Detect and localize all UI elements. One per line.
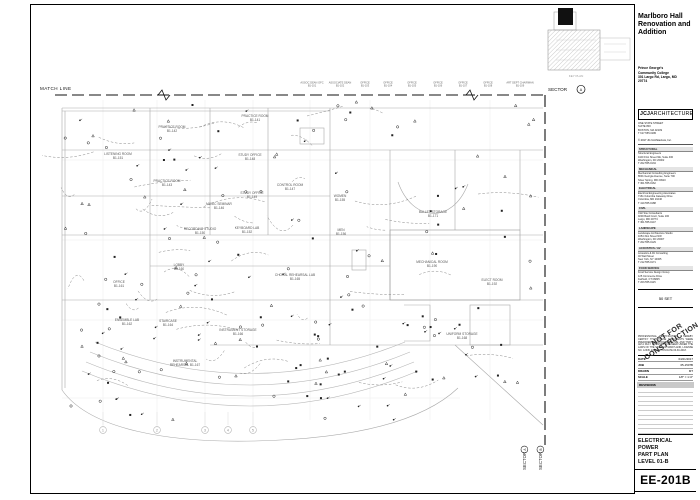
junction-box-symbol bbox=[430, 326, 432, 328]
circuit-arc bbox=[136, 199, 152, 211]
equipment-symbol bbox=[532, 118, 535, 120]
circuit-arc bbox=[126, 304, 140, 310]
sector-a-letter: A bbox=[523, 448, 527, 451]
circuit-arc bbox=[267, 216, 293, 231]
room-label: STAIRCASEB1-164 bbox=[159, 319, 177, 327]
receptacle-symbol bbox=[317, 338, 319, 340]
junction-box-symbol bbox=[415, 371, 417, 373]
equipment-symbol bbox=[529, 287, 532, 289]
sheet-title-line: LEVEL 01-B bbox=[638, 459, 693, 466]
circuit-arc bbox=[367, 227, 385, 230]
grid-bubble-number: 3 bbox=[204, 428, 206, 432]
room-label: OFFICEB1-105 bbox=[407, 81, 417, 88]
drawing-sheet: KEY PLAN MATCH LINE SECTOR A bbox=[0, 0, 700, 500]
project-title-line: Addition bbox=[638, 29, 693, 37]
room-label: ART DEPT CHAIRMANB1-109 bbox=[506, 81, 533, 88]
room-label: BALLET STORAGEB1-171 bbox=[419, 210, 447, 218]
junction-box-symbol bbox=[287, 380, 289, 382]
equipment-symbol bbox=[385, 362, 388, 364]
junction-box-symbol bbox=[320, 397, 322, 399]
receptacle-symbol bbox=[471, 346, 473, 348]
junction-box-symbol bbox=[114, 256, 116, 258]
field-value: 05-1507B bbox=[680, 363, 693, 367]
receptacle-symbol bbox=[346, 191, 348, 193]
receptacle-symbol bbox=[324, 417, 326, 419]
room-label: INSTRUMENT STORAGEB1-166 bbox=[219, 328, 256, 336]
room-label: MENB1-156 bbox=[336, 228, 347, 236]
junction-box-symbol bbox=[376, 346, 378, 348]
junction-box-symbol bbox=[314, 334, 316, 336]
room-label: LISTENING ROOMB1-151 bbox=[104, 152, 132, 160]
equipment-symbol bbox=[516, 381, 519, 383]
consultant-entry: ACOUSTICS / AVAcoustics & AV Consulting4… bbox=[638, 247, 693, 265]
junction-box-symbol bbox=[435, 253, 437, 255]
receptacle-symbol bbox=[98, 303, 100, 305]
circuit-arc bbox=[143, 209, 173, 216]
sheet-title-line: ELECTRICAL bbox=[638, 438, 693, 445]
sector-b-letter: B bbox=[539, 448, 543, 450]
circuit-arc bbox=[418, 271, 451, 275]
junction-box-symbol bbox=[97, 342, 99, 344]
equipment-symbol bbox=[179, 305, 182, 307]
circuit-arc bbox=[349, 291, 404, 294]
room-label: WOMENB1-155 bbox=[334, 194, 347, 202]
circuit-arc bbox=[466, 354, 513, 358]
receptacle-symbol bbox=[423, 326, 425, 328]
junction-box-symbol bbox=[317, 335, 319, 337]
junction-box-symbol bbox=[106, 308, 108, 310]
junction-box-symbol bbox=[211, 298, 213, 300]
receptacle-symbol bbox=[80, 329, 82, 331]
logo-bold: JCJ bbox=[640, 111, 650, 117]
equipment-symbol bbox=[239, 338, 242, 340]
field-label: JOB bbox=[638, 363, 644, 367]
junction-box-symbol bbox=[504, 236, 506, 238]
field-value: 04/21/2017 bbox=[679, 357, 693, 361]
equipment-symbol bbox=[527, 123, 530, 125]
junction-box-symbol bbox=[459, 324, 461, 326]
receptacle-symbol bbox=[85, 232, 87, 234]
sheet-title-line: POWER bbox=[638, 445, 693, 452]
grid-bubble-number: 1 bbox=[102, 428, 104, 432]
equipment-symbol bbox=[443, 377, 446, 379]
circuit-arc bbox=[42, 152, 93, 158]
consultant-entry: ELECTRICALElectrical Engineering Associa… bbox=[638, 187, 693, 205]
room-label: OFFICEB1-108 bbox=[483, 81, 493, 88]
match-line-label: MATCH LINE bbox=[40, 86, 71, 91]
room-label: LOBBYB1-160 bbox=[174, 263, 186, 271]
equipment-symbol bbox=[275, 153, 278, 155]
consultant-line: T 301.555.0147 bbox=[638, 221, 693, 224]
receptacle-symbol bbox=[105, 146, 107, 148]
receptacle-symbol bbox=[187, 292, 189, 294]
circuit-arc bbox=[206, 351, 224, 361]
circuit-arc bbox=[231, 252, 268, 261]
client-line: 20774 bbox=[638, 79, 693, 83]
field-label: SCALE bbox=[638, 375, 648, 379]
sector-b-label: SECTOR bbox=[538, 452, 543, 470]
revisions-lines bbox=[638, 388, 693, 434]
circuit-arc bbox=[297, 314, 307, 320]
consultant-line: T 202.555.0134 bbox=[638, 162, 693, 165]
equipment-symbol bbox=[319, 359, 322, 361]
consultant-line: T 410.555.0188 bbox=[638, 202, 693, 205]
circuit-arc bbox=[240, 364, 260, 374]
receptacle-symbol bbox=[312, 129, 314, 131]
equipment-symbol bbox=[414, 120, 417, 122]
equipment-symbol bbox=[81, 345, 84, 347]
grid-bubbles: 12345 bbox=[100, 412, 257, 433]
receptacle-symbol bbox=[433, 334, 435, 336]
circuit-arc bbox=[244, 359, 289, 368]
room-label: STUDY OFFICEB1-148 bbox=[238, 153, 261, 161]
room-label: OFFICEB1-104 bbox=[383, 81, 393, 88]
junction-box-symbol bbox=[338, 374, 340, 376]
receptacle-symbol bbox=[348, 294, 350, 296]
junction-box-symbol bbox=[191, 104, 193, 106]
equipment-symbol bbox=[81, 202, 84, 204]
receptacle-symbol bbox=[218, 376, 220, 378]
equipment-symbol bbox=[381, 259, 384, 261]
field-value: 1/8" = 1'-0" bbox=[679, 375, 693, 379]
receptacle-symbol bbox=[261, 324, 263, 326]
receptacle-symbol bbox=[195, 274, 197, 276]
room-label: OFFICEB1-103 bbox=[360, 81, 370, 88]
receptacle-symbol bbox=[337, 105, 339, 107]
circuit-arc bbox=[159, 250, 190, 253]
grid-bubble-number: 5 bbox=[252, 428, 254, 432]
seating-tiers bbox=[82, 342, 418, 406]
sheet-number: EE-201B bbox=[635, 469, 696, 492]
architect-address: ONE STATE STREET SUITE 800 BOSTON, MA 02… bbox=[638, 122, 693, 135]
room-label: INSTRUMENTALREHEARSAL B1-167 bbox=[170, 359, 201, 367]
copyright-line: © 2017 JCJ Architecture, Inc. bbox=[638, 139, 693, 145]
receptacle-symbol bbox=[314, 321, 316, 323]
junction-box-symbol bbox=[437, 195, 439, 197]
circuit-arc bbox=[200, 122, 244, 128]
equipment-symbol bbox=[273, 156, 276, 158]
receptacle-symbol bbox=[216, 241, 218, 243]
keyplan-label: KEY PLAN bbox=[569, 74, 584, 78]
junction-box-symbol bbox=[306, 395, 308, 397]
sector-tag-top: SECTOR A bbox=[548, 85, 585, 93]
room-label: PRACTICE ROOMB1-142 bbox=[159, 125, 186, 133]
room-label: ELECT ROOMB1-192 bbox=[481, 278, 502, 286]
sector-top-label: SECTOR bbox=[548, 87, 568, 92]
equipment-symbol bbox=[184, 188, 187, 190]
junction-box-symbol bbox=[129, 414, 131, 416]
keyplan: KEY PLAN bbox=[548, 8, 630, 78]
grid-bubble-number: 2 bbox=[156, 428, 158, 432]
room-label: RECORDING STUDIOB1-150 bbox=[184, 227, 217, 235]
receptacle-symbol bbox=[362, 305, 364, 307]
project-title-line: Marlboro Hall bbox=[638, 13, 693, 21]
sector-tag-bottom-b: SECTOR B bbox=[537, 446, 544, 470]
room-labels: PRACTICE ROOMB1-141PRACTICE ROOMB1-142LI… bbox=[104, 114, 503, 367]
receptacle-symbol bbox=[434, 318, 436, 320]
junction-box-symbol bbox=[297, 119, 299, 121]
room-label: OFFICEB1-106 bbox=[433, 81, 443, 88]
receptacle-symbol bbox=[345, 118, 347, 120]
equipment-symbol bbox=[315, 382, 318, 384]
receptacle-symbol bbox=[396, 126, 398, 128]
equipment-symbol bbox=[270, 304, 273, 306]
equipment-symbol bbox=[167, 120, 170, 122]
junction-box-symbol bbox=[107, 382, 109, 384]
junction-box-symbol bbox=[349, 111, 351, 113]
junction-box-symbol bbox=[256, 346, 258, 348]
equipment-symbol bbox=[504, 380, 507, 382]
consultant-entry: LANDSCAPELandscape Architecture Studio10… bbox=[638, 227, 693, 245]
junction-box-symbol bbox=[501, 210, 503, 212]
circuit-arc bbox=[277, 340, 320, 344]
receptacle-symbol bbox=[108, 328, 110, 330]
set-label: 50 SET bbox=[638, 289, 693, 308]
consultant-entry: MECHANICALMechanical Consulting Engineer… bbox=[638, 167, 693, 185]
circuit-arc bbox=[68, 275, 84, 289]
receptacle-symbol bbox=[346, 275, 348, 277]
architect-address-line: T 617.555.0180 bbox=[638, 132, 693, 135]
room-label: CHORAL REHEARSAL LABB1-165 bbox=[275, 273, 315, 281]
sheet-title-line: PART PLAN bbox=[638, 452, 693, 459]
receptacle-symbol bbox=[70, 405, 72, 407]
titleblock: Marlboro Hall Renovation and Addition Pr… bbox=[634, 4, 696, 494]
room-label: CONTROL ROOMB1-147 bbox=[277, 183, 304, 191]
junction-box-symbol bbox=[295, 367, 297, 369]
circuit-arc bbox=[355, 196, 416, 205]
junction-box-symbol bbox=[320, 383, 322, 385]
receptacle-symbol bbox=[87, 142, 89, 144]
equipment-symbol bbox=[122, 357, 125, 359]
junction-box-symbol bbox=[432, 379, 434, 381]
junction-box-symbol bbox=[477, 307, 479, 309]
client-block: Prince George's Community College 301 La… bbox=[638, 66, 693, 82]
circuit-arc bbox=[61, 188, 74, 197]
receptacle-symbol bbox=[130, 178, 132, 180]
receptacle-symbol bbox=[160, 368, 162, 370]
equipment-symbol bbox=[404, 393, 407, 395]
sector-a-label: SECTOR bbox=[522, 452, 527, 470]
circuit-arc bbox=[165, 307, 227, 315]
logo-rest: ARCHITECTURE bbox=[650, 111, 693, 117]
electrical-devices bbox=[64, 101, 535, 421]
consultant-entry: STRUCTURALStructural Engineers1100 First… bbox=[638, 147, 693, 165]
circuit-arc bbox=[359, 382, 402, 385]
room-label: KEYBOARD LABB1-152 bbox=[235, 226, 260, 234]
junction-box-symbol bbox=[497, 375, 499, 377]
circuit-arc bbox=[194, 154, 222, 159]
junction-box-symbol bbox=[237, 254, 239, 256]
junction-box-symbol bbox=[327, 358, 329, 360]
junction-box-symbol bbox=[437, 224, 439, 226]
receptacle-symbol bbox=[141, 283, 143, 285]
field-value: MT bbox=[689, 369, 693, 373]
circuit-arc bbox=[396, 380, 439, 388]
room-label: MECHANICAL ROOMB1-190 bbox=[416, 260, 448, 268]
equipment-symbol bbox=[125, 360, 128, 362]
junction-box-symbol bbox=[344, 371, 346, 373]
consultant-line: T 202.555.0129 bbox=[638, 241, 693, 244]
equipment-symbol bbox=[462, 207, 465, 209]
equipment-symbol bbox=[504, 175, 507, 177]
project-title: Marlboro Hall Renovation and Addition bbox=[638, 13, 693, 36]
equipment-symbol bbox=[514, 104, 517, 106]
room-label: ASSOC DEAN OFCB1-101 bbox=[300, 81, 323, 88]
equipment-symbol bbox=[172, 418, 175, 420]
sheet-title: ELECTRICAL POWER PART PLAN LEVEL 01-B bbox=[638, 434, 693, 466]
equipment-symbol bbox=[431, 252, 434, 254]
field-label: DRAWN bbox=[638, 369, 649, 373]
junction-box-symbol bbox=[312, 237, 314, 239]
receptacle-symbol bbox=[298, 219, 300, 221]
consultant-line: T 212.555.0171 bbox=[638, 261, 693, 264]
receptacle-symbol bbox=[426, 230, 428, 232]
circuit-arc bbox=[152, 205, 212, 207]
consultants-list: STRUCTURALStructural Engineers1100 First… bbox=[638, 147, 693, 286]
junction-box-symbol bbox=[163, 159, 165, 161]
room-label: OFFICEB1-107 bbox=[458, 81, 468, 88]
floor-plan: KEY PLAN MATCH LINE SECTOR A bbox=[0, 0, 634, 500]
field-scale: SCALE1/8" = 1'-0" bbox=[638, 375, 693, 381]
junction-box-symbol bbox=[500, 344, 502, 346]
room-label: ENSEMBLE LABB1-162 bbox=[115, 318, 139, 326]
receptacle-symbol bbox=[159, 137, 161, 139]
junction-box-symbol bbox=[217, 130, 219, 132]
equipment-symbol bbox=[214, 342, 217, 344]
consultant-entry: CIVILCivil Site Consultants9200 Basil Co… bbox=[638, 207, 693, 225]
junction-box-symbol bbox=[260, 316, 262, 318]
receptacle-symbol bbox=[222, 194, 224, 196]
circuit-arc bbox=[238, 122, 257, 127]
circuit-arc bbox=[99, 137, 134, 143]
room-label: PRACTICE ROOMB1-141 bbox=[242, 114, 269, 122]
keyplan-sector-fill bbox=[558, 8, 573, 25]
circuit-arc bbox=[190, 290, 235, 295]
project-title-line: Renovation and bbox=[638, 21, 693, 29]
consultant-line: T 301.555.0162 bbox=[638, 182, 693, 185]
receptacle-symbol bbox=[99, 400, 101, 402]
receptacle-symbol bbox=[168, 237, 170, 239]
circuit-arc bbox=[385, 219, 429, 223]
equipment-symbol bbox=[235, 375, 238, 377]
stamp-area: NOT FOR CONSTRUCTION bbox=[638, 308, 693, 335]
junction-box-symbol bbox=[391, 134, 393, 136]
junction-box-symbol bbox=[422, 315, 424, 317]
equipment-symbol bbox=[325, 371, 328, 373]
junction-box-symbol bbox=[173, 159, 175, 161]
circuit-wiring bbox=[42, 106, 538, 388]
matchline-room-labels: ASSOC DEAN OFCB1-101ASSOCIATE DEANB1-102… bbox=[300, 81, 533, 88]
room-label: OFFICEB1-161 bbox=[113, 280, 125, 288]
consultant-entry: FOOD SERVICEFood Service Design Group125… bbox=[638, 266, 693, 284]
junction-box-symbol bbox=[300, 364, 302, 366]
grid-bubble-number: 4 bbox=[227, 428, 229, 432]
receptacle-symbol bbox=[529, 260, 531, 262]
equipment-symbol bbox=[355, 101, 358, 103]
sector-top-letter: A bbox=[580, 88, 583, 92]
junction-box-symbol bbox=[407, 324, 409, 326]
consultant-line: T 203.555.0115 bbox=[638, 281, 693, 284]
room-label: UNIFORM STORAGEB1-168 bbox=[446, 332, 477, 340]
room-label: STUDY OFFICEB1-149 bbox=[240, 191, 263, 199]
sector-tag-bottom-a: SECTOR A bbox=[521, 446, 528, 470]
equipment-symbol bbox=[92, 135, 95, 137]
room-label: ASSOCIATE DEANB1-102 bbox=[329, 81, 352, 88]
equipment-symbol bbox=[88, 203, 91, 205]
equipment-symbol bbox=[64, 227, 67, 229]
circuit-arc bbox=[138, 291, 157, 301]
architect-logo: JCJARCHITECTURE bbox=[638, 109, 693, 120]
room-label: PRACTICE ROOMB1-143 bbox=[154, 179, 181, 187]
equipment-symbol bbox=[476, 155, 479, 157]
circuit-arc bbox=[292, 177, 305, 181]
receptacle-symbol bbox=[138, 371, 140, 373]
circuit-arc bbox=[233, 215, 252, 222]
receptacle-symbol bbox=[287, 268, 289, 270]
junction-box-symbol bbox=[351, 309, 353, 311]
receptacle-symbol bbox=[105, 278, 107, 280]
